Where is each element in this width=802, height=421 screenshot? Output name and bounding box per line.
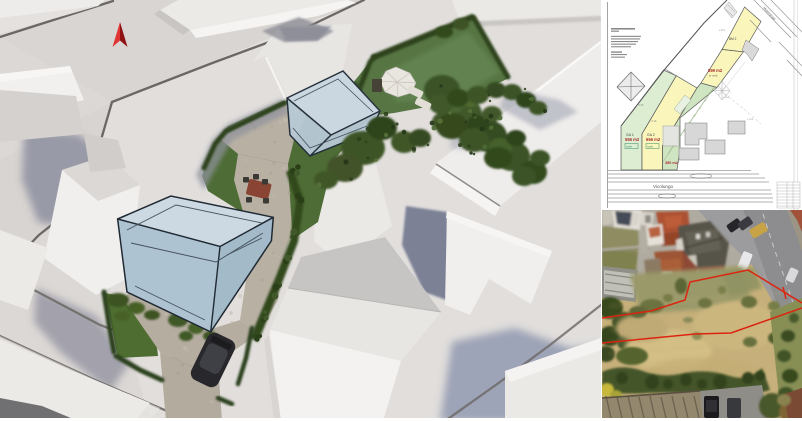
svg-text:Vicolungo: Vicolungo xyxy=(653,184,674,189)
svg-text:+ 3.25: + 3.25 xyxy=(636,103,644,107)
svg-text:bwk: bwk xyxy=(627,145,633,149)
svg-text:bwk: bwk xyxy=(648,145,654,149)
svg-text:BM 2: BM 2 xyxy=(729,37,737,41)
svg-text:+ 3.10: + 3.10 xyxy=(649,119,657,123)
svg-text:899 m2: 899 m2 xyxy=(708,68,723,73)
svg-text:+ 2.2: + 2.2 xyxy=(723,95,729,99)
svg-text:te verk.: te verk. xyxy=(709,74,718,78)
svg-text:+ 8.1: + 8.1 xyxy=(719,28,725,32)
svg-text:+ 3.4: + 3.4 xyxy=(747,117,753,121)
svg-text:656 m2: 656 m2 xyxy=(646,137,661,142)
svg-text:556 m2: 556 m2 xyxy=(625,137,640,142)
svg-text:350 m2: 350 m2 xyxy=(665,161,678,165)
